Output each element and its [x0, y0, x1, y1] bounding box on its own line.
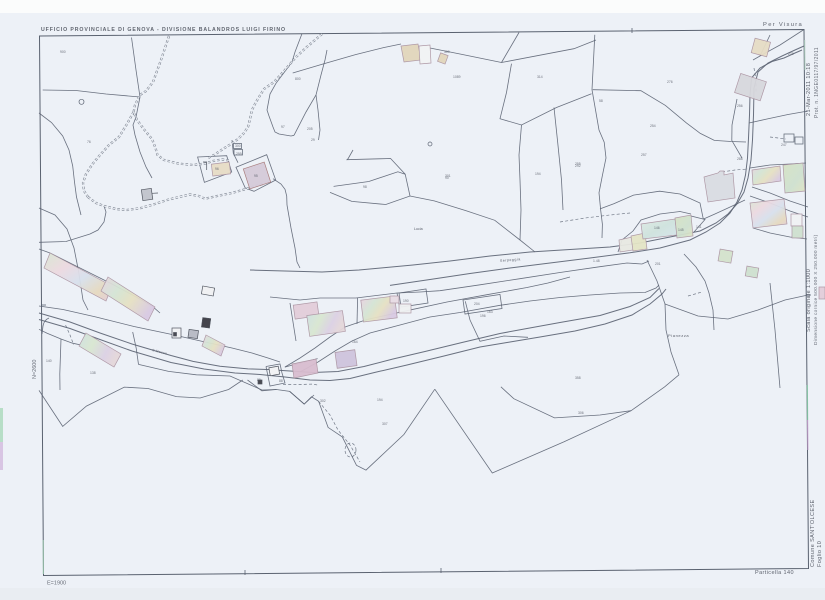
svg-text:89: 89 — [257, 378, 261, 382]
svg-text:58: 58 — [599, 99, 603, 103]
svg-text:300: 300 — [235, 144, 241, 148]
svg-text:98: 98 — [363, 185, 367, 189]
svg-text:146: 146 — [654, 226, 660, 230]
svg-text:E=1900: E=1900 — [47, 581, 66, 587]
svg-text:307: 307 — [382, 422, 388, 426]
svg-text:302: 302 — [320, 399, 326, 403]
svg-text:21-Mar-2011 10:18: 21-Mar-2011 10:18 — [806, 63, 812, 116]
svg-text:254: 254 — [650, 124, 656, 128]
svg-text:Prot. n. 1NGE0117/97/2011: Prot. n. 1NGE0117/97/2011 — [814, 47, 820, 118]
svg-text:194: 194 — [535, 172, 541, 176]
svg-text:UFFICIO PROVINCIALE DI GENOVA: UFFICIO PROVINCIALE DI GENOVA - DIVISION… — [41, 27, 286, 33]
svg-text:900: 900 — [60, 50, 66, 54]
svg-text:163: 163 — [487, 310, 493, 314]
svg-text:255: 255 — [575, 162, 581, 166]
svg-text:164: 164 — [352, 340, 358, 344]
svg-text:Pianezza: Pianezza — [668, 333, 689, 338]
svg-text:N=2600: N=2600 — [32, 360, 38, 379]
svg-text:190: 190 — [403, 299, 409, 303]
svg-text:140: 140 — [46, 359, 52, 363]
svg-text:Comune SANT'OLCESE: Comune SANT'OLCESE — [810, 499, 816, 567]
svg-text:196: 196 — [480, 314, 486, 318]
svg-text:Per Visura: Per Visura — [763, 22, 803, 28]
svg-text:1.48: 1.48 — [593, 259, 600, 263]
svg-text:1089: 1089 — [453, 75, 461, 79]
svg-text:96: 96 — [215, 167, 219, 171]
svg-text:Foglio 10: Foglio 10 — [817, 541, 823, 567]
svg-text:300: 300 — [444, 50, 450, 54]
svg-text:88: 88 — [279, 379, 283, 383]
svg-text:276: 276 — [667, 80, 673, 84]
svg-text:138: 138 — [90, 371, 96, 375]
svg-text:301: 301 — [445, 174, 451, 178]
svg-text:257: 257 — [641, 153, 647, 157]
svg-text:194: 194 — [377, 398, 383, 402]
svg-text:306: 306 — [578, 411, 584, 415]
svg-text:201: 201 — [655, 262, 661, 266]
svg-text:204: 204 — [474, 302, 480, 306]
svg-text:205: 205 — [307, 127, 313, 131]
svg-text:29: 29 — [311, 138, 315, 142]
svg-text:97: 97 — [281, 125, 285, 129]
svg-text:141: 141 — [696, 225, 702, 229]
svg-text:76: 76 — [87, 140, 91, 144]
svg-text:314: 314 — [537, 75, 543, 79]
svg-text:247: 247 — [781, 143, 787, 147]
svg-text:288: 288 — [737, 157, 743, 161]
svg-text:358: 358 — [575, 376, 581, 380]
svg-text:256: 256 — [737, 104, 743, 108]
svg-text:Lucia: Lucia — [414, 227, 423, 231]
svg-text:145: 145 — [678, 228, 684, 232]
svg-text:Particella 140: Particella 140 — [755, 570, 794, 576]
svg-text:95: 95 — [254, 174, 258, 178]
svg-text:800: 800 — [295, 77, 301, 81]
svg-text:279: 279 — [788, 52, 794, 56]
svg-text:Dimensione cornice 500.000 X 2: Dimensione cornice 500.000 X 250.000 met… — [813, 234, 819, 345]
svg-text:299: 299 — [236, 152, 242, 156]
